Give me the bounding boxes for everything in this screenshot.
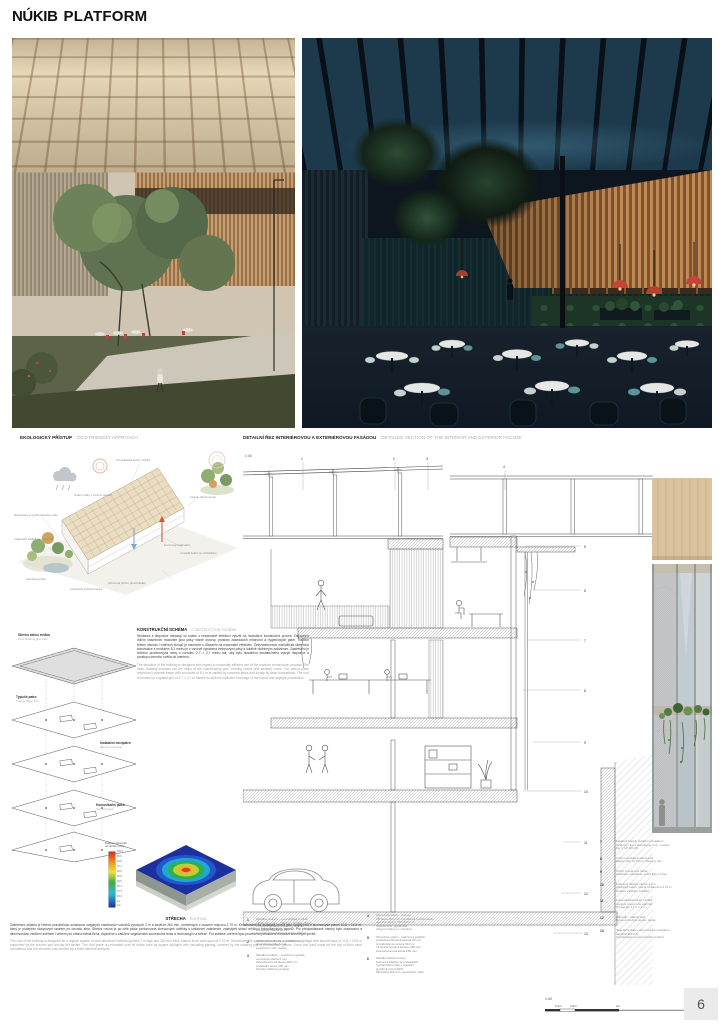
svg-text:9: 9 bbox=[584, 741, 586, 745]
eco-title: EKOLOGICKÝ PŘÍSTUP bbox=[20, 435, 72, 440]
eco-label: komínový efekt atria bbox=[164, 543, 190, 547]
person-silhouette bbox=[659, 799, 665, 826]
standing-person bbox=[507, 279, 513, 301]
svg-text:1: 1 bbox=[301, 457, 303, 461]
page-number-box: 6 bbox=[684, 988, 718, 1020]
scalebar-tick: 0.4m bbox=[555, 1004, 562, 1008]
legend-item: 11 Fotovoltaická stínicí mřížkaocelové k… bbox=[600, 899, 718, 910]
eco-label: retenční jezírko bbox=[26, 577, 46, 581]
legend-item: 2 Podhledová lamela dub 40/60 mmakustick… bbox=[247, 940, 355, 951]
eco-label: zelené střechy teras bbox=[190, 495, 216, 499]
eco-label: vzrostlá zeleň ve vnitrobloku bbox=[180, 551, 217, 555]
legend-column-3: 7 Zasklení fasády izolačním trojsklemhli… bbox=[600, 840, 718, 946]
axon-layer-label: Střešní stínicí mřížkaRoof shading grid … bbox=[18, 634, 50, 641]
legend-item: 5 Obvodová stěna – nadzemní podlažípohle… bbox=[367, 936, 487, 954]
detail-section-header: DETAILNÍ ŘEZ INTERIÉROVOU A EXTERIÉROVOU… bbox=[243, 435, 522, 440]
heatmap-tick: 36.4 bbox=[117, 886, 123, 888]
eco-label: fotovoltaická stínicí mřížka bbox=[116, 458, 150, 462]
fem-plate bbox=[130, 840, 240, 912]
pendant-lamps bbox=[456, 238, 702, 297]
svg-text:8: 8 bbox=[584, 689, 586, 693]
legend-item: 10 Kazetový střešní vazník 2,0 mpředpjat… bbox=[600, 883, 718, 894]
planters bbox=[600, 298, 690, 320]
svg-text:13: 13 bbox=[584, 932, 588, 936]
svg-text:10: 10 bbox=[584, 790, 588, 794]
heatmap-ticks: 100.090.981.872.763.654.545.536.427.318.… bbox=[117, 851, 123, 908]
legend-item: 12 Zábradlí – kalené sklokotvené do čela… bbox=[600, 916, 718, 923]
detail-subtitle: DETAILED SECTION OF THE INTERIOR AND EXT… bbox=[381, 435, 521, 440]
svg-text:5: 5 bbox=[584, 545, 586, 549]
roof-subtitle: ROOFING bbox=[190, 917, 207, 921]
svg-text:7: 7 bbox=[584, 639, 586, 643]
render-atrium-night bbox=[302, 38, 712, 428]
facade-elevation-strip bbox=[652, 478, 712, 833]
legend-item: 13 Vegetační žlab s automatickou závlaho… bbox=[600, 929, 718, 940]
svg-text:2: 2 bbox=[393, 457, 395, 461]
logo-left: NÚKIB bbox=[12, 8, 58, 25]
roof-title: STŘECHA bbox=[165, 916, 185, 921]
legend-column-2: 4 Obvodová stěna – suterénŽB stěna 300 m… bbox=[367, 914, 487, 979]
cafeteria-tables bbox=[365, 340, 699, 407]
page-number: 6 bbox=[697, 996, 705, 1012]
rain-cloud-icon bbox=[53, 467, 77, 490]
legend-item: 7 Zasklení fasády izolačním trojsklemhli… bbox=[600, 840, 718, 851]
cafe-furniture bbox=[95, 328, 193, 339]
legend-item: 1 Skladba podlahy – kancelářské podlažín… bbox=[247, 918, 355, 936]
courtyard-overlay bbox=[12, 38, 295, 428]
trees-right bbox=[200, 462, 234, 495]
section-scale: 1:40 bbox=[245, 454, 252, 458]
heatmap-tick: 81.8 bbox=[117, 861, 123, 863]
detail-title: DETAILNÍ ŘEZ INTERIÉROVOU A EXTERIÉROVOU… bbox=[243, 435, 376, 440]
heatmap-tick: 0.0 bbox=[117, 905, 123, 907]
facade-section-drawing: 1:40 bbox=[243, 450, 653, 985]
roof-structure bbox=[243, 466, 653, 539]
logo-right: PLATFORM bbox=[64, 8, 148, 25]
heatmap-tick: 45.5 bbox=[117, 881, 123, 883]
svg-text:11: 11 bbox=[584, 841, 588, 845]
heatmap-legend-title: Diagram deformací od zatížení [mm] bbox=[105, 842, 127, 848]
eco-label: vsakování srážek na pozemku bbox=[14, 537, 53, 541]
eco-label: akumulace a využití dešťové vody bbox=[14, 513, 58, 517]
car-outline bbox=[253, 869, 339, 912]
eco-label: solární zisky v zimním období bbox=[74, 493, 112, 497]
eco-label: přirozené příčné provětrávání bbox=[108, 581, 146, 585]
heatmap-colorbar bbox=[108, 851, 116, 908]
logo: NÚKIBPLATFORM bbox=[12, 8, 147, 25]
presentation-board: NÚKIBPLATFORM bbox=[0, 0, 724, 1024]
scalebar-tick: 2m bbox=[616, 1004, 621, 1008]
legend-item: 6 Skladba střešní terasybetonová dlažba … bbox=[367, 957, 487, 975]
axon-layer-label: Typické patroTypical office floor bbox=[16, 696, 39, 703]
foreground-chairs bbox=[360, 398, 686, 426]
construction-subtitle: CONSTRUCTION SCHEME bbox=[191, 628, 236, 632]
heatmap-tick: 63.6 bbox=[117, 871, 123, 873]
legend-item: 3 Skladba podlahy – podzemní garážeepoxi… bbox=[247, 954, 355, 972]
render-courtyard bbox=[12, 38, 295, 428]
construction-title: KONSTRUKČNÍ SCHÉMA bbox=[137, 627, 187, 632]
axon-layer-label: Komunikační jádraVertical cores bbox=[96, 804, 125, 811]
heatmap-tick: 9.1 bbox=[117, 901, 123, 903]
scale-bar: 1:40 0.4m 0.8m 2m 4m bbox=[545, 995, 705, 1017]
heatmap-tick: 27.3 bbox=[117, 891, 123, 893]
legend-item: 4 Obvodová stěna – suterénŽB stěna 300 m… bbox=[367, 914, 487, 932]
axon-layer-label: Instalační mezipatroService interlayer bbox=[100, 742, 131, 749]
heatmap-tick: 100.0 bbox=[117, 851, 123, 853]
svg-text:4: 4 bbox=[503, 465, 505, 469]
eco-label: extenzivní kvetoucí louky bbox=[70, 587, 103, 591]
heatmap-tick: 18.2 bbox=[117, 896, 123, 898]
heatmap-tick: 90.9 bbox=[117, 856, 123, 858]
scalebar-tick: 0.8m bbox=[570, 1004, 577, 1008]
svg-text:6: 6 bbox=[584, 589, 586, 593]
svg-text:12: 12 bbox=[584, 892, 588, 896]
scalebar-scale: 1:40 bbox=[545, 997, 552, 1001]
legend-column-1: 1 Skladba podlahy – kancelářské podlažín… bbox=[247, 918, 355, 976]
legend-item: 9 Stínicí screenová roletaelektricky ovl… bbox=[600, 870, 718, 877]
heatmap-tick: 54.5 bbox=[117, 876, 123, 878]
eco-section-header: EKOLOGICKÝ PŘÍSTUPECO-FRIENDLY APPROACH bbox=[20, 435, 138, 440]
eco-subtitle: ECO-FRIENDLY APPROACH bbox=[77, 435, 138, 440]
heatmap-tick: 72.7 bbox=[117, 866, 123, 868]
legend-item: 8 Vnitřní prosklená stěna atriakalené sk… bbox=[600, 857, 718, 864]
callout-numbers: 1 2 3 4 5 6 7 8 9 10 11 12 13 bbox=[301, 457, 588, 936]
svg-text:3: 3 bbox=[426, 457, 428, 461]
eco-diagram: fotovoltaická stínicí mřížka solární zis… bbox=[12, 450, 240, 595]
atrium-overlay bbox=[302, 38, 712, 428]
